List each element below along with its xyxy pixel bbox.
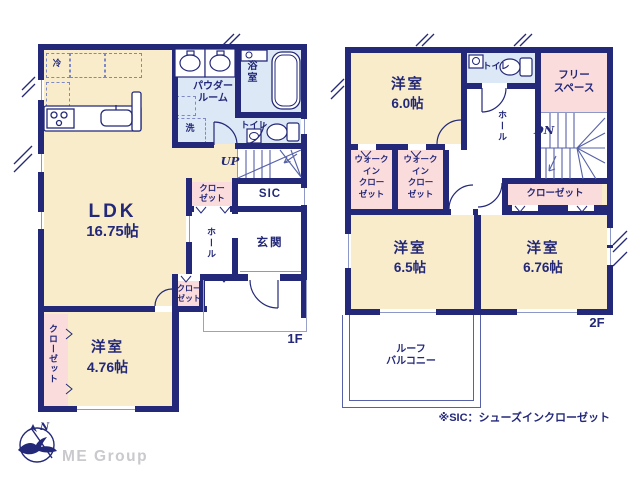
- room-ldk-name: LDK: [55, 201, 170, 224]
- door-opening: [568, 205, 594, 211]
- wall: [235, 143, 307, 149]
- room-hall-1f-label: ホール: [206, 227, 215, 260]
- room-youshitsu-676-size: 6.76帖: [482, 260, 604, 276]
- stair-edge-line: [541, 112, 607, 113]
- wic-b-label: ウォーク イン クロー ゼット: [398, 154, 443, 200]
- window: [301, 119, 307, 134]
- wall: [607, 47, 613, 315]
- wall: [535, 47, 541, 112]
- door-opening: [478, 209, 502, 215]
- floor2-label: 2F: [582, 315, 612, 331]
- window: [607, 248, 613, 265]
- door-opening: [358, 144, 376, 150]
- door-opening: [451, 209, 473, 215]
- sic-note: ※SIC：シューズインクローゼット: [418, 412, 610, 425]
- wall: [508, 178, 607, 184]
- wall: [235, 112, 307, 118]
- wic-a-label: ウォーク イン クロー ゼット: [351, 154, 392, 200]
- door-opening: [482, 83, 507, 89]
- door-opening: [445, 144, 461, 150]
- room-ldk-size: 16.75帖: [55, 223, 170, 241]
- wall: [38, 306, 207, 312]
- compass-n-label: N: [39, 422, 50, 433]
- genkan-step-line: [240, 271, 301, 272]
- room-youshitsu-65-name: 洋室: [350, 241, 470, 258]
- closet-1f-a-label: クロー ゼット: [192, 183, 232, 203]
- cabinet-box: [70, 53, 106, 78]
- window: [517, 309, 577, 315]
- roof-balcony-label: ルーフ バルコニー: [352, 344, 470, 368]
- room-youshitsu-676-name: 洋室: [482, 241, 604, 258]
- door-opening: [194, 206, 230, 212]
- wall: [172, 142, 214, 148]
- room-hall-2f-label: ホール: [497, 110, 506, 143]
- window: [77, 406, 135, 412]
- floorplan-canvas: N LDK 16.75帖 洋室 4.76帖 パウダー ルーム 浴室 洗 冷 トイ…: [0, 0, 640, 480]
- floor1-label: 1F: [280, 331, 310, 347]
- closet-1f-b-label: クロー ゼット: [176, 284, 202, 303]
- room-youshitsu-1f-size: 4.76帖: [50, 359, 165, 376]
- entrance-porch: [203, 280, 307, 332]
- room-youshitsu-1f-name: 洋室: [50, 340, 165, 357]
- room-sic-label: SIC: [240, 188, 300, 202]
- window: [607, 228, 613, 245]
- fridge-label: 冷: [46, 58, 68, 68]
- window: [38, 212, 44, 229]
- door-opening: [408, 144, 426, 150]
- closet-2f-label: クローゼット: [508, 188, 602, 199]
- wall: [172, 306, 179, 412]
- wall: [443, 144, 449, 215]
- wall: [474, 215, 481, 309]
- door-opening: [232, 214, 238, 238]
- room-youshitsu-60-name: 洋室: [350, 77, 465, 94]
- room-toilet-2f-label: トイレ: [480, 61, 512, 72]
- wall: [237, 178, 307, 184]
- room-powder-label: パウダー ルーム: [186, 81, 240, 105]
- stairs-dn-label: DN: [532, 124, 556, 138]
- window: [301, 188, 307, 205]
- door-opening: [178, 274, 200, 281]
- wall: [345, 47, 613, 53]
- room-youshitsu-65-size: 6.5帖: [350, 260, 470, 276]
- stairs-1f-area: [237, 149, 301, 178]
- brand-logo-text: ME Group: [62, 448, 148, 466]
- stairs-up-label: UP: [219, 155, 241, 169]
- room-genkan-label: 玄関: [240, 237, 300, 251]
- closet-1f-c-label: クローゼット: [48, 324, 57, 384]
- room-toilet-1f-label: トイレ: [238, 120, 270, 131]
- door-opening: [155, 306, 172, 312]
- cabinet-box: [104, 53, 142, 78]
- room-bath-label: 浴室: [245, 60, 255, 84]
- cabinet-box: [46, 82, 70, 107]
- door-opening: [512, 205, 538, 211]
- washer-label: 洗: [176, 123, 204, 134]
- room-free-space-label: フリー スペース: [543, 69, 605, 94]
- window: [38, 80, 44, 100]
- window: [38, 154, 44, 172]
- compass-icon: N: [18, 422, 57, 462]
- room-youshitsu-60-size: 6.0帖: [350, 96, 465, 112]
- bird-logo: [18, 437, 57, 454]
- door-opening: [186, 216, 192, 242]
